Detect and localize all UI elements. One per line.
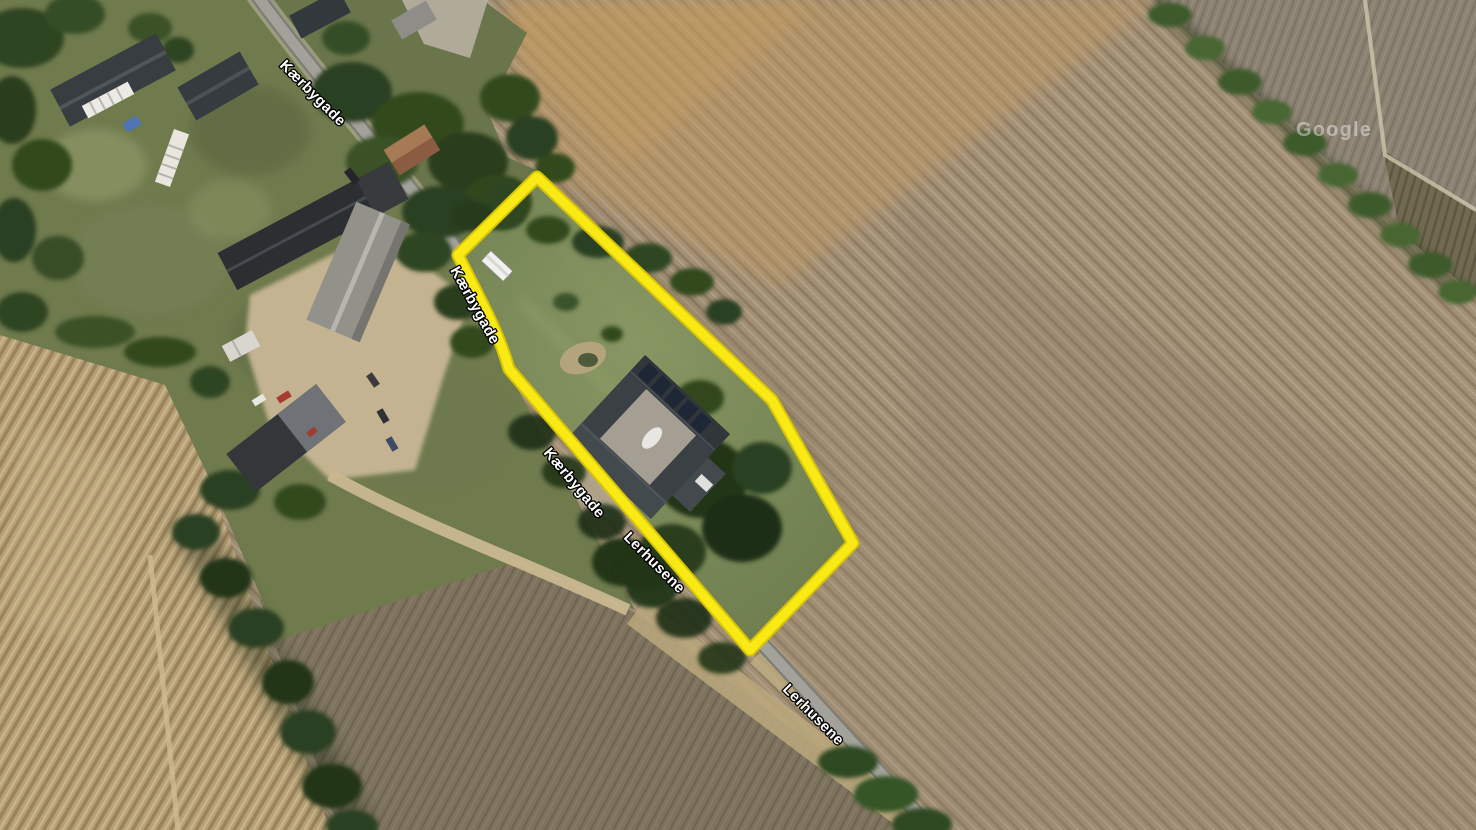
google-watermark: Google [1296, 119, 1372, 141]
satellite-map[interactable]: Kærbygade Kærbygade Kærbygade Lerhusene … [0, 0, 1476, 830]
